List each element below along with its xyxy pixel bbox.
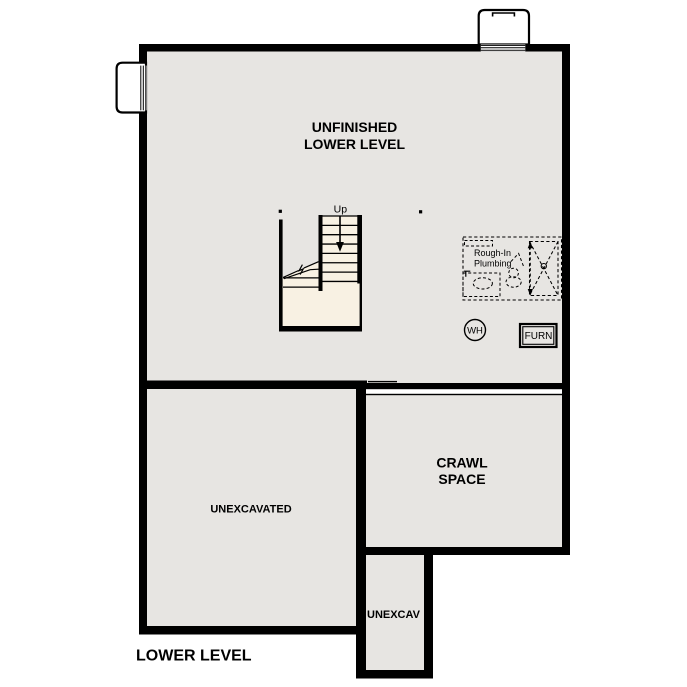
svg-text:UNFINISHED: UNFINISHED <box>312 119 398 135</box>
svg-text:Rough-In: Rough-In <box>474 248 511 258</box>
svg-text:Plumbing: Plumbing <box>474 259 512 269</box>
svg-text:WH: WH <box>467 325 483 336</box>
svg-text:UNEXCAVATED: UNEXCAVATED <box>210 503 291 515</box>
svg-text:FURN: FURN <box>525 331 553 342</box>
svg-text:CRAWL: CRAWL <box>436 455 488 471</box>
svg-text:LOWER LEVEL: LOWER LEVEL <box>304 136 406 152</box>
svg-text:Up: Up <box>334 204 348 216</box>
svg-text:SPACE: SPACE <box>438 471 485 487</box>
svg-text:LOWER LEVEL: LOWER LEVEL <box>136 648 252 665</box>
svg-text:UNEXCAV: UNEXCAV <box>367 609 421 621</box>
